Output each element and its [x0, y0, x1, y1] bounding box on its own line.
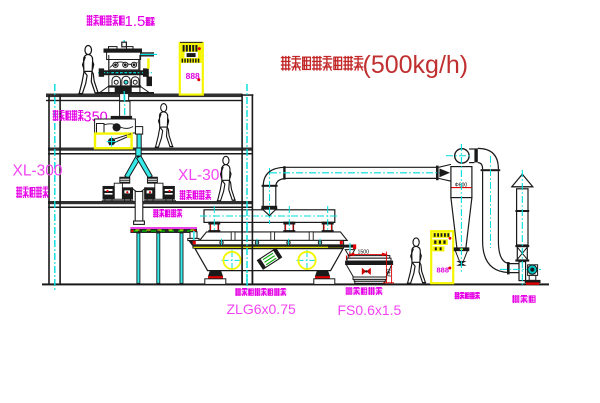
svg-text:1500: 1500: [358, 249, 370, 255]
svg-text:ZLG6x0.75: ZLG6x0.75: [227, 301, 296, 317]
svg-text:340: 340: [387, 269, 393, 278]
svg-text:XL-300: XL-300: [13, 163, 63, 180]
svg-text:888: 888: [437, 266, 450, 275]
svg-text:(500kg/h): (500kg/h): [363, 51, 469, 79]
svg-text:FS0.6x1.5: FS0.6x1.5: [338, 302, 402, 318]
svg-text:1.5: 1.5: [125, 13, 146, 30]
